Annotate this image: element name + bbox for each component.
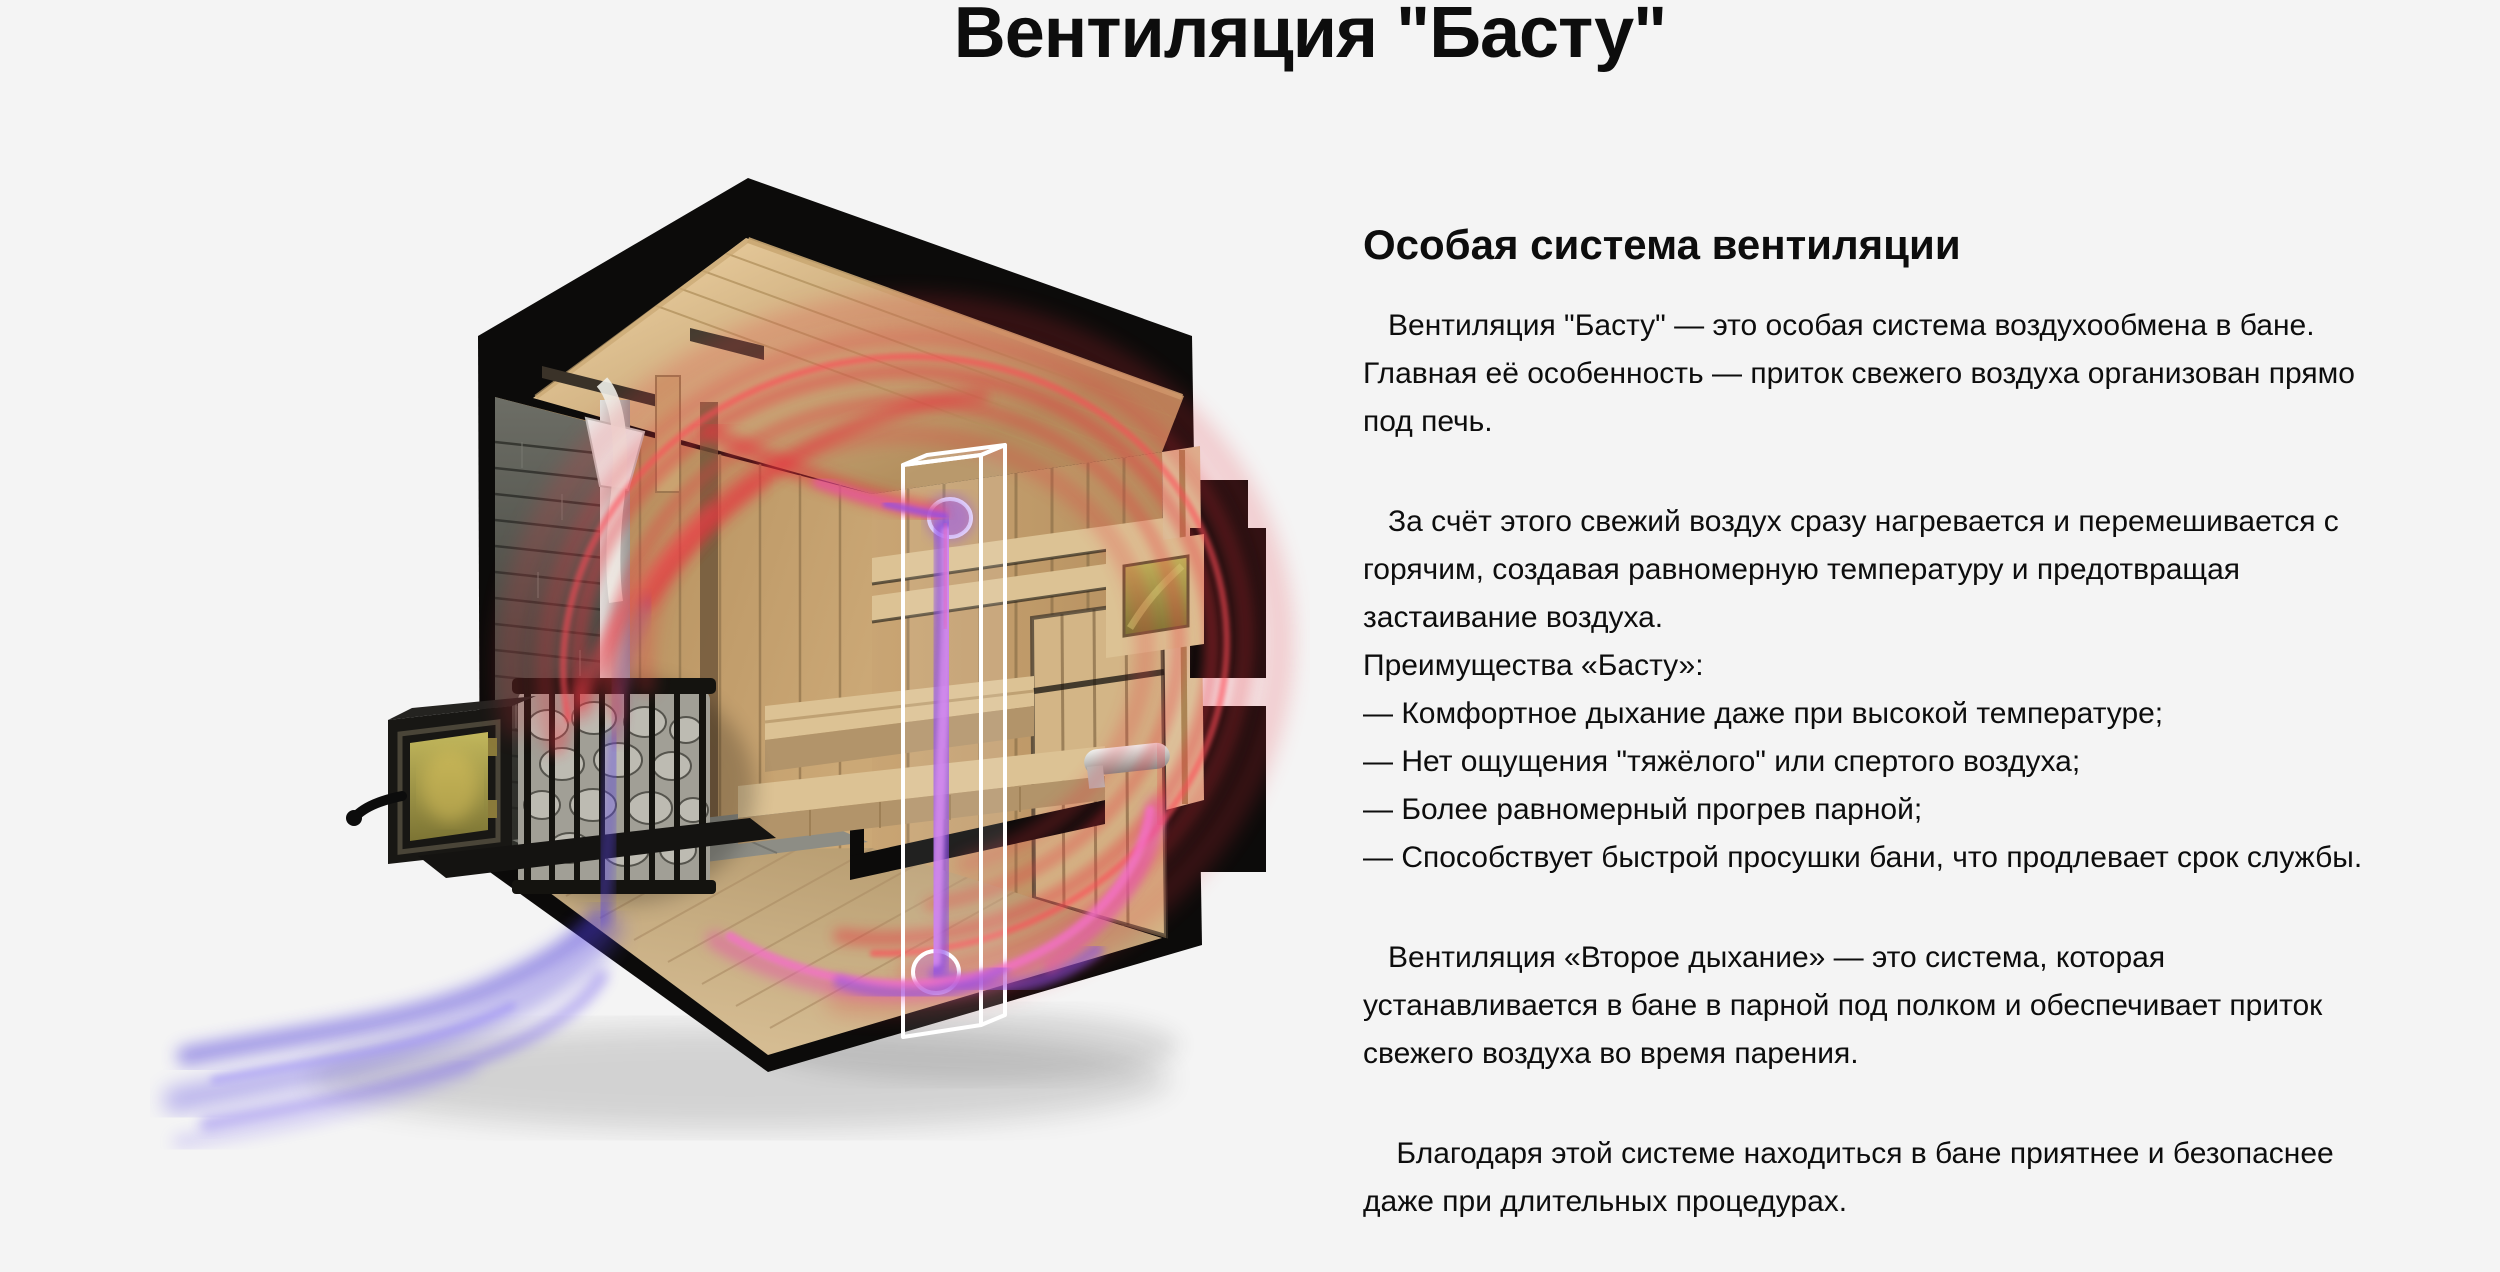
sauna-cutaway-render	[150, 150, 1310, 1160]
paragraph-bastu-intro: Вентиляция "Басту" — это особая система …	[1363, 302, 2475, 446]
page-title: Вентиляция "Басту"	[150, 0, 2470, 74]
article: Особая система вентиляции Вентиляция "Ба…	[1363, 220, 2475, 1226]
paragraph-benefit: Благодаря этой системе находиться в бане…	[1363, 1130, 2475, 1226]
paragraph-second-breath: Вентиляция «Второе дыхание» — это систем…	[1363, 934, 2475, 1078]
page: Вентиляция "Басту"	[0, 0, 2500, 1272]
article-heading: Особая система вентиляции	[1363, 220, 2475, 270]
paragraph-advantages: За счёт этого свежий воздух сразу нагрев…	[1363, 498, 2475, 882]
sauna-ventilation-illustration	[150, 150, 1310, 1160]
